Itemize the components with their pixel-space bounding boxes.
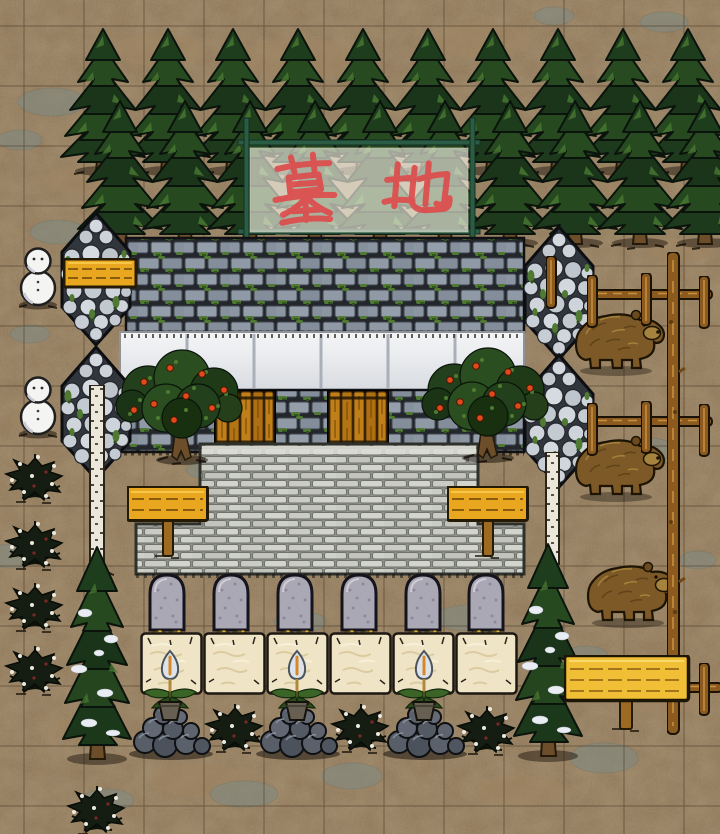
banner-cloth bbox=[250, 148, 468, 232]
stone-patch bbox=[640, 12, 688, 32]
fence-post[interactable] bbox=[699, 404, 709, 456]
wooden-door[interactable] bbox=[328, 391, 389, 452]
stone-patch bbox=[0, 130, 42, 150]
game-map-canvas[interactable] bbox=[0, 0, 720, 834]
fence-post[interactable] bbox=[587, 275, 597, 327]
stone-patch bbox=[322, 763, 382, 789]
snowman[interactable] bbox=[19, 378, 57, 439]
gravestone[interactable] bbox=[149, 575, 188, 638]
pale-block[interactable] bbox=[205, 634, 265, 694]
fence-post[interactable] bbox=[546, 256, 556, 308]
game-map-screenshot: 墓地 bbox=[0, 0, 720, 834]
fence-post[interactable] bbox=[641, 401, 651, 453]
gravestone[interactable] bbox=[213, 575, 252, 638]
wall-sign[interactable] bbox=[64, 259, 136, 287]
fence-post[interactable] bbox=[699, 663, 709, 715]
gravestone[interactable] bbox=[341, 575, 380, 638]
gravestone[interactable] bbox=[468, 575, 507, 638]
gravestone[interactable] bbox=[405, 575, 444, 638]
dirt-patch bbox=[476, 775, 564, 805]
stone-patch bbox=[534, 7, 574, 25]
stone-patch bbox=[10, 325, 50, 343]
gravestone[interactable] bbox=[277, 575, 316, 638]
fence-post[interactable] bbox=[587, 403, 597, 455]
stone-patch bbox=[210, 781, 278, 807]
snowman[interactable] bbox=[19, 249, 57, 310]
stone-patch bbox=[570, 743, 638, 773]
pale-block[interactable] bbox=[457, 634, 517, 694]
fence-post[interactable] bbox=[699, 276, 709, 328]
moss-stone-wall[interactable] bbox=[126, 238, 524, 332]
floor-top-highlight bbox=[202, 446, 476, 454]
fence-post[interactable] bbox=[641, 273, 651, 325]
pale-block[interactable] bbox=[331, 634, 391, 694]
